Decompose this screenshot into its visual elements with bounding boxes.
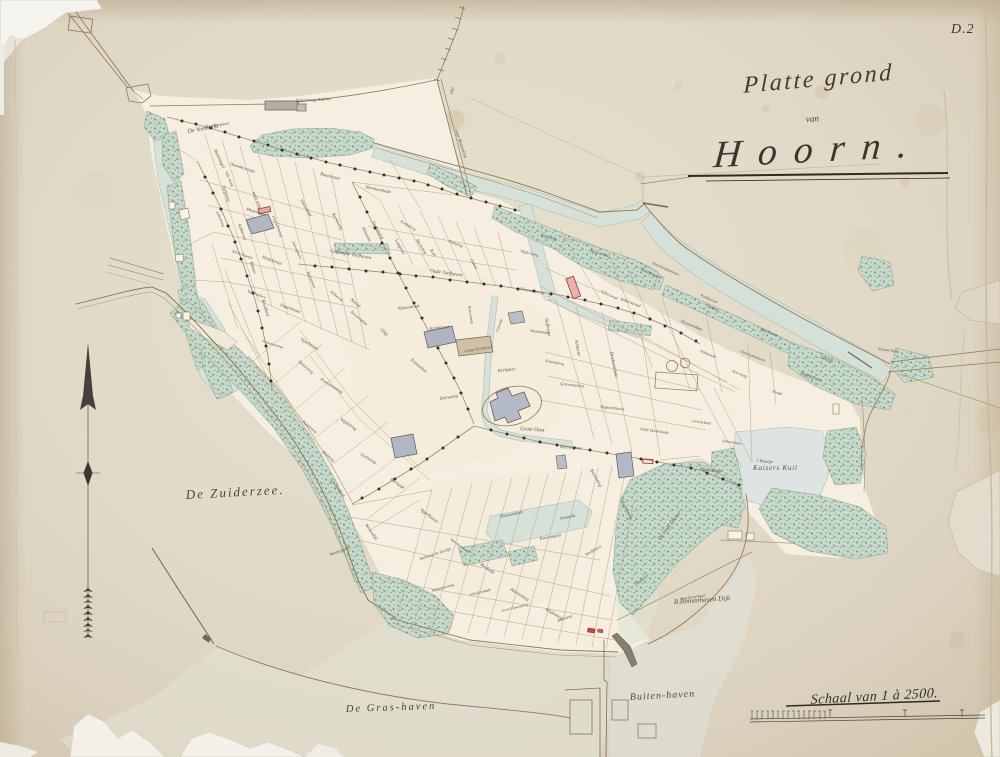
- svg-text:van: van: [805, 113, 819, 124]
- svg-text:D.2: D.2: [950, 22, 975, 37]
- svg-text:Kaizers Kuil: Kaizers Kuil: [752, 464, 798, 472]
